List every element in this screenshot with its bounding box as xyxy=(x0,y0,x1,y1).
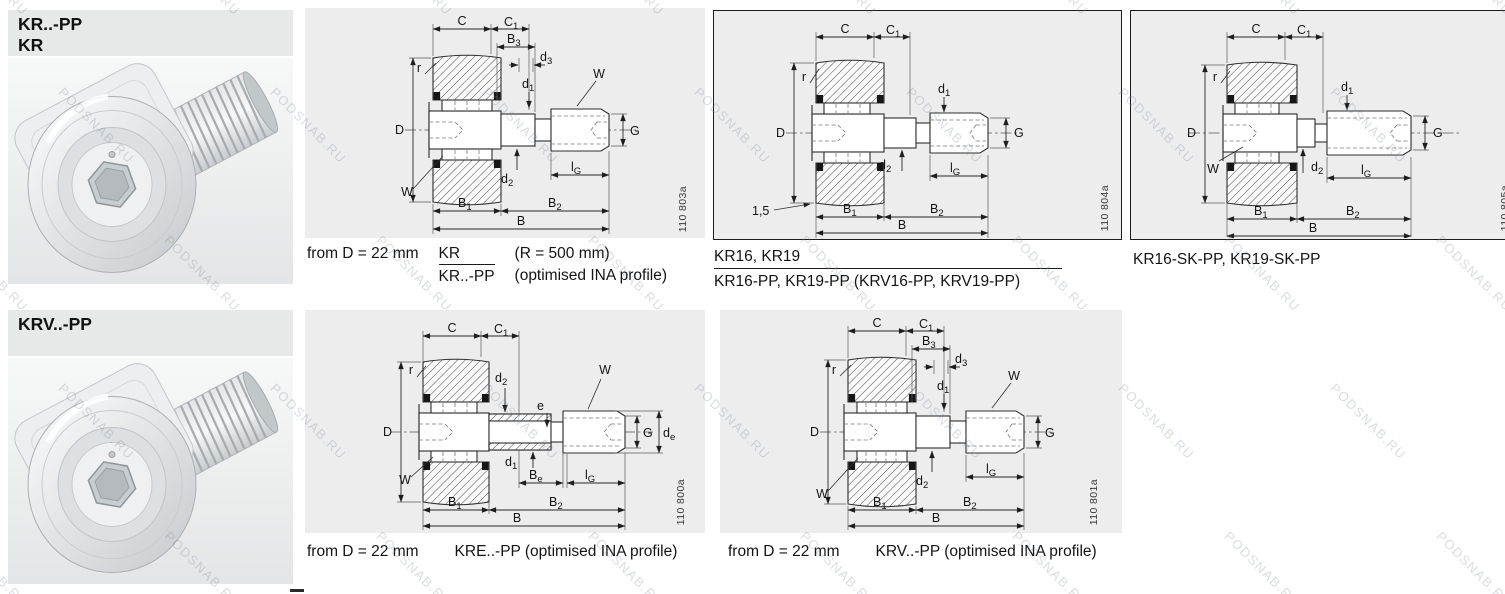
dim-d1: d1 xyxy=(505,455,517,472)
dim-B2: B2 xyxy=(549,495,563,512)
figure-number-kr16sk: 110 805a xyxy=(1499,185,1505,231)
watermark-text: PODSNAB.RU xyxy=(585,528,667,594)
dim-d2: d2 xyxy=(501,172,513,189)
dim-C: C xyxy=(872,316,881,330)
dim-C: C xyxy=(1251,22,1260,36)
dim-D: D xyxy=(810,425,819,439)
dim-d2: d2 xyxy=(1311,160,1323,177)
stud-section xyxy=(405,102,639,158)
dim-B2: B2 xyxy=(1346,204,1360,221)
watermark-text: PODSNAB.RU xyxy=(1433,528,1505,594)
product-photo-krv-image xyxy=(8,358,293,584)
krv-drawing-panel: C C1 B3 d3 d1 W r D W d2 lG G B1 B2 B 11… xyxy=(720,310,1122,533)
dim-d3: d3 xyxy=(955,352,967,369)
kr16-drawing-panel: C C1 r D d1 d2 G lG 1,5 B1 B2 B 110 804a xyxy=(713,10,1122,240)
dim-C: C xyxy=(457,14,466,28)
dim-G: G xyxy=(1014,126,1024,140)
dim-G: G xyxy=(1433,126,1443,140)
caption-kr16: KR16, KR19 KR16-PP, KR19-PP (KRV16-PP, K… xyxy=(714,247,1062,291)
dim-W-roller: W xyxy=(399,473,411,487)
kr16sk-drawing-panel: C C1 r D d1 W d2 G lG B1 B2 B 110 805a xyxy=(1130,10,1505,240)
dim-W-roller: W xyxy=(1207,162,1219,176)
dim-d1: d1 xyxy=(937,379,949,396)
caption-kre-prefix: from D = 22 mm xyxy=(307,543,419,561)
series-header-krv-line1: KRV..-PP xyxy=(18,314,283,335)
caption-krv: from D = 22 mm KRV..-PP (optimised INA p… xyxy=(728,543,1097,561)
kr16-drawing: C C1 r D d1 d2 G lG 1,5 B1 B2 B xyxy=(714,11,1120,238)
dim-B2: B2 xyxy=(963,495,977,512)
dim-W-thread: W xyxy=(1008,369,1020,383)
dim-W-roller: W xyxy=(816,487,828,501)
dim-D: D xyxy=(383,425,392,439)
stud-section xyxy=(786,105,1020,161)
watermark-text: PODSNAB.RU xyxy=(373,528,455,594)
caption-kr16-line1: KR16, KR19 xyxy=(714,247,1062,269)
figure-number-kr: 110 803a xyxy=(677,186,689,232)
dim-d1: d1 xyxy=(1341,80,1353,97)
product-photo-kr-image xyxy=(8,58,293,284)
krv-drawing: C C1 B3 d3 d1 W r D W d2 lG G B1 B2 B xyxy=(720,310,1122,533)
dim-W-thread: W xyxy=(599,363,611,377)
watermark-text: PODSNAB.RU xyxy=(1221,232,1303,314)
roller-face xyxy=(28,97,196,273)
dim-lG: lG xyxy=(571,160,581,177)
watermark-text: PODSNAB.RU xyxy=(797,528,879,594)
dim-D: D xyxy=(395,123,404,137)
caption-kre-label: KRE..-PP (optimised INA profile) xyxy=(455,543,678,561)
caption-kr-notes: (R = 500 mm) (optimised INA profile) xyxy=(515,244,667,285)
dim-D: D xyxy=(776,126,785,140)
stud-section xyxy=(1189,105,1461,161)
watermark-text: PODSNAB.RU xyxy=(1433,232,1505,314)
dim-C1: C1 xyxy=(919,317,933,334)
dim-r: r xyxy=(832,363,836,377)
dim-W-thread: W xyxy=(593,67,605,81)
page-mark xyxy=(290,589,304,592)
dim-lG: lG xyxy=(986,462,996,479)
kre-drawing: C C1 r d2 W e d1 D W G de Be lG B1 B2 B xyxy=(305,310,705,533)
stud-section xyxy=(390,404,653,460)
figure-number-kre: 110 800a xyxy=(675,479,687,525)
dim-B: B xyxy=(898,218,906,232)
dim-B2: B2 xyxy=(930,202,944,219)
figure-number-krv: 110 801a xyxy=(1088,479,1100,525)
dim-d2: d2 xyxy=(495,371,507,388)
kr-drawing-panel: C C1 B3 d3 d1 W r D W d2 lG G B1 B2 B 11… xyxy=(305,8,705,238)
dim-B: B xyxy=(1309,221,1317,235)
dim-d2: d2 xyxy=(916,474,928,491)
dim-e: e xyxy=(537,399,544,413)
caption-kr: from D = 22 mm KR KR..-PP (R = 500 mm) (… xyxy=(307,244,667,286)
dim-lG: lG xyxy=(585,468,595,485)
product-photo-krv xyxy=(8,358,293,584)
dim-B: B xyxy=(932,511,940,525)
dim-r: r xyxy=(417,61,421,75)
series-header-kr-line1: KR..-PP xyxy=(18,14,283,35)
dim-B: B xyxy=(517,214,525,228)
caption-kre: from D = 22 mm KRE..-PP (optimised INA p… xyxy=(307,543,677,561)
series-header-kr: KR..-PP KR xyxy=(8,10,293,56)
stud-section xyxy=(820,404,1054,460)
dim-G: G xyxy=(1045,426,1055,440)
watermark-text: PODSNAB.RU xyxy=(1115,380,1197,462)
dim-B1: B1 xyxy=(1254,204,1268,221)
watermark-text: PODSNAB.RU xyxy=(1009,528,1091,594)
kre-drawing-panel: C C1 r d2 W e d1 D W G de Be lG B1 B2 B … xyxy=(305,310,705,533)
dim-d1: d1 xyxy=(522,77,534,94)
kr16sk-drawing: C C1 r D d1 W d2 G lG B1 B2 B xyxy=(1131,11,1505,238)
dim-G: G xyxy=(643,426,653,440)
dim-r: r xyxy=(409,363,413,377)
caption-kr-prefix: from D = 22 mm xyxy=(307,244,419,263)
caption-kr-designation: KR KR..-PP xyxy=(439,244,495,286)
product-photo-kr xyxy=(8,58,293,284)
dim-B: B xyxy=(513,511,521,525)
caption-kr16sk-line1: KR16-SK-PP, KR19-SK-PP xyxy=(1133,250,1321,269)
caption-kr16-line2: KR16-PP, KR19-PP (KRV16-PP, KRV19-PP) xyxy=(714,269,1062,291)
series-header-krv: KRV..-PP xyxy=(8,310,293,356)
dim-G: G xyxy=(630,124,640,138)
dim-de: de xyxy=(663,426,675,443)
dim-lG: lG xyxy=(950,161,960,178)
kr-drawing: C C1 B3 d3 d1 W r D W d2 lG G B1 B2 B xyxy=(305,8,705,238)
dim-B3: B3 xyxy=(507,32,521,49)
dim-C1: C1 xyxy=(494,322,508,339)
dim-D: D xyxy=(1187,126,1196,140)
dim-chamfer: 1,5 xyxy=(752,204,769,218)
dim-Be: Be xyxy=(529,468,543,485)
figure-number-kr16: 110 804a xyxy=(1099,185,1111,231)
dim-B3: B3 xyxy=(922,334,936,351)
series-header-kr-line2: KR xyxy=(18,35,283,56)
caption-krv-prefix: from D = 22 mm xyxy=(728,543,840,561)
caption-kr16sk: KR16-SK-PP, KR19-SK-PP xyxy=(1133,250,1321,269)
watermark-text: PODSNAB.RU xyxy=(1327,380,1409,462)
dim-B2: B2 xyxy=(548,196,562,213)
dim-C: C xyxy=(447,321,456,335)
dim-d3: d3 xyxy=(540,50,552,67)
caption-krv-label: KRV..-PP (optimised INA profile) xyxy=(876,543,1097,561)
dim-d1: d1 xyxy=(938,82,950,99)
dim-W-roller: W xyxy=(401,185,413,199)
watermark-text: PODSNAB.RU xyxy=(1221,528,1303,594)
dim-C: C xyxy=(840,22,849,36)
dim-r: r xyxy=(1213,70,1217,84)
dim-lG: lG xyxy=(1361,163,1371,180)
dim-r: r xyxy=(802,70,806,84)
